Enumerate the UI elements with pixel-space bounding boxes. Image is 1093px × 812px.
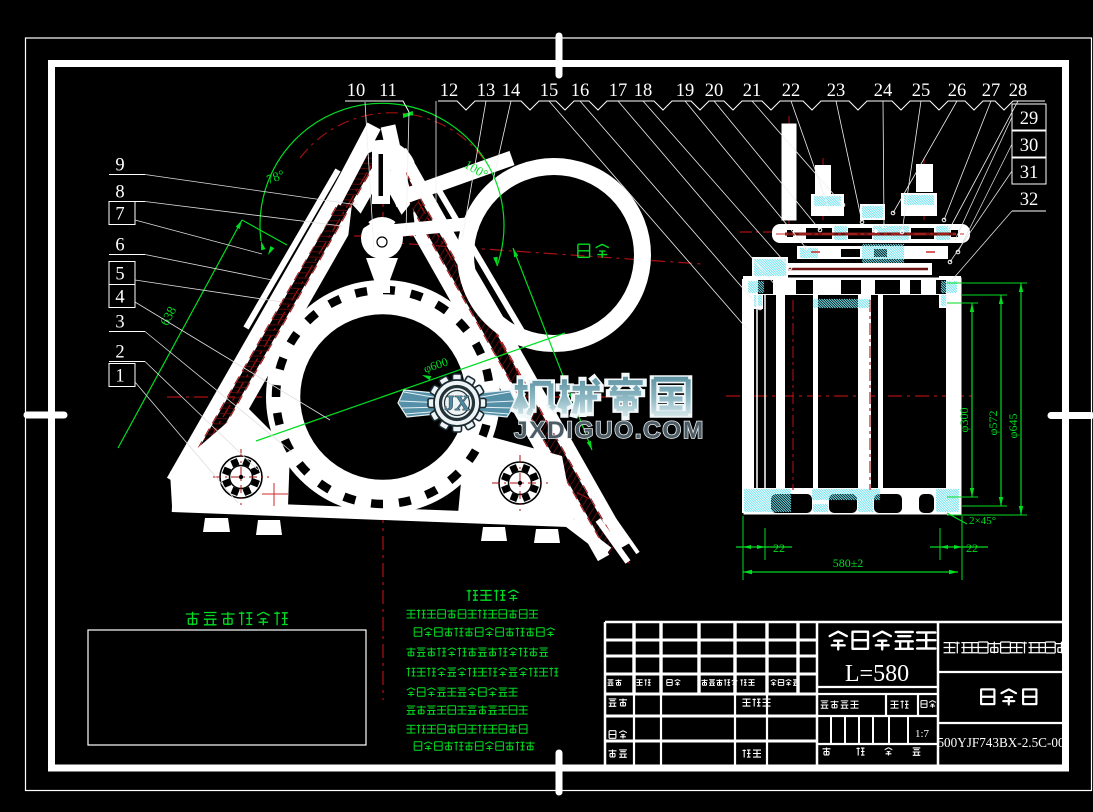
- svg-text:9: 9: [115, 156, 124, 176]
- svg-text:500YJF743BX-2.5C-00: 500YJF743BX-2.5C-00: [937, 735, 1065, 750]
- svg-text:22: 22: [966, 541, 978, 555]
- svg-text:4: 4: [115, 288, 124, 308]
- svg-text:580±2: 580±2: [833, 556, 864, 570]
- svg-text:3: 3: [115, 313, 124, 333]
- svg-text:φ572: φ572: [986, 411, 1000, 436]
- svg-text:5: 5: [115, 265, 124, 285]
- svg-text:L=580: L=580: [845, 661, 909, 687]
- svg-text:14: 14: [502, 81, 521, 101]
- svg-text:25: 25: [912, 81, 931, 101]
- svg-text:7: 7: [115, 205, 124, 225]
- svg-text:20: 20: [705, 81, 724, 101]
- svg-text:21: 21: [743, 81, 762, 101]
- svg-text:φ645: φ645: [1006, 414, 1020, 439]
- svg-text:23: 23: [827, 81, 846, 101]
- svg-text:18: 18: [634, 81, 653, 101]
- svg-text:29: 29: [1020, 109, 1039, 129]
- svg-text:22: 22: [782, 81, 801, 101]
- svg-text:2×45°: 2×45°: [969, 515, 996, 527]
- svg-text:27: 27: [982, 81, 1001, 101]
- svg-text:10: 10: [347, 81, 366, 101]
- svg-text:JX: JX: [444, 391, 470, 415]
- svg-text:13: 13: [477, 81, 496, 101]
- svg-text:1:7: 1:7: [915, 728, 930, 740]
- svg-text:11: 11: [379, 81, 397, 101]
- svg-text:16: 16: [571, 81, 590, 101]
- svg-text:30: 30: [1020, 136, 1039, 156]
- svg-text:28: 28: [1009, 81, 1028, 101]
- svg-text:φ300: φ300: [957, 408, 971, 433]
- svg-text:22: 22: [773, 541, 785, 555]
- svg-text:19: 19: [676, 81, 695, 101]
- svg-text:2: 2: [115, 343, 124, 363]
- svg-text:6: 6: [115, 236, 124, 256]
- svg-text:31: 31: [1020, 163, 1039, 183]
- svg-text:8: 8: [115, 183, 124, 203]
- svg-text:1: 1: [115, 367, 124, 387]
- svg-text:12: 12: [440, 81, 459, 101]
- svg-text:26: 26: [948, 81, 967, 101]
- svg-text:24: 24: [874, 81, 893, 101]
- svg-text:15: 15: [540, 81, 559, 101]
- svg-text:JXDIGUO.COM: JXDIGUO.COM: [514, 417, 705, 444]
- svg-text:17: 17: [609, 81, 628, 101]
- svg-text:32: 32: [1020, 190, 1039, 210]
